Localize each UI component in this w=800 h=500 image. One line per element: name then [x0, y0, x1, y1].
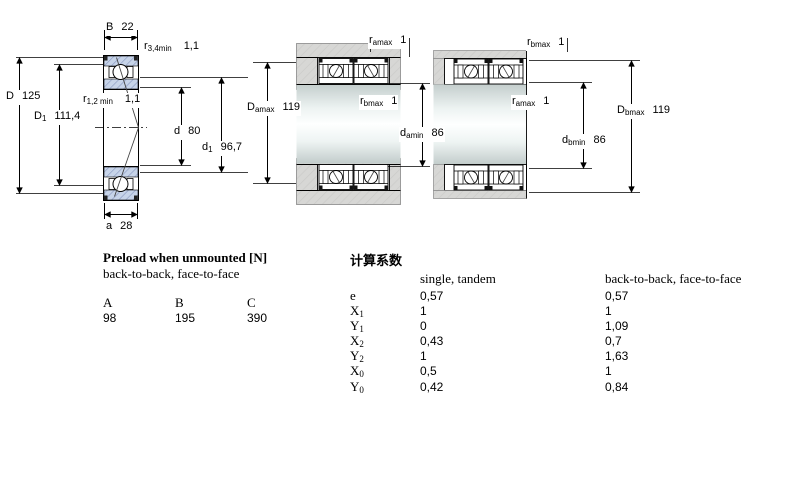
bearing-datasheet-page: B22 r3,4min1,1 D125 D1111,4 r1,2 min1,1 …	[0, 0, 800, 500]
factor-value: 0,57	[605, 289, 628, 303]
factor-value: 0,57	[420, 289, 443, 303]
factor-value: 1	[605, 364, 612, 378]
dim-label-a: a28	[105, 220, 133, 235]
dim-label-damin: damin86	[399, 127, 445, 142]
calculation-factors-table: 计算系数 single, tandem back-to-back, face-t…	[350, 250, 770, 400]
dim-label-ramax-middle: ramax1	[368, 34, 407, 49]
factor-value: 0,5	[420, 364, 437, 378]
dim-label-Damax: Damax119	[246, 101, 301, 116]
dim-label-ramax-right: ramax1	[511, 95, 550, 110]
factor-value: 1	[420, 349, 427, 363]
dim-label-rbmax-middle: rbmax1	[359, 95, 398, 110]
preload-table-title: Preload when unmounted [N]	[103, 250, 267, 266]
dim-label-B: B22	[105, 21, 135, 36]
factor-value: 0,84	[605, 380, 628, 394]
factor-row-label: e	[350, 288, 356, 304]
dim-label-d1: d196,7	[201, 141, 243, 156]
dim-label-r12min: r1,2 min1,1	[82, 93, 141, 108]
factor-value: 0	[420, 319, 427, 333]
factor-value: 1	[420, 304, 427, 318]
factor-value: 1	[605, 304, 612, 318]
factor-row-label: Y1	[350, 318, 364, 334]
preload-value-A: 98	[103, 311, 116, 325]
dim-label-Dbmax: Dbmax119	[616, 104, 671, 119]
factor-row-label: Y2	[350, 348, 364, 364]
factor-value: 0,7	[605, 334, 622, 348]
dim-label-rbmax-right: rbmax1	[526, 36, 565, 51]
factor-row-label: Y0	[350, 379, 364, 395]
right-mounting-drawing	[434, 38, 641, 199]
preload-value-B: 195	[175, 311, 195, 325]
dim-label-D1: D1111,4	[33, 110, 81, 125]
factor-value: 0,43	[420, 334, 443, 348]
preload-table-subtitle: back-to-back, face-to-face	[103, 266, 239, 282]
factors-table-title: 计算系数	[350, 250, 402, 269]
factor-value: 1,63	[605, 349, 628, 363]
preload-col-C: C	[247, 295, 256, 311]
factor-row-label: X1	[350, 303, 364, 319]
preload-col-A: A	[103, 295, 112, 311]
dim-label-r34min: r3,4min1,1	[143, 40, 200, 55]
dim-label-D: D125	[5, 90, 41, 105]
middle-mounting-drawing	[253, 38, 430, 205]
factors-col-single-tandem: single, tandem	[420, 271, 496, 287]
factor-row-label: X0	[350, 363, 364, 379]
dim-label-d: d80	[173, 125, 201, 140]
preload-value-C: 390	[247, 311, 267, 325]
preload-table: Preload when unmounted [N] back-to-back,…	[103, 250, 323, 335]
preload-col-B: B	[175, 295, 184, 311]
factor-row-label: X2	[350, 333, 364, 349]
factors-col-back-to-back: back-to-back, face-to-face	[605, 271, 741, 287]
dim-label-dbmin: dbmin86	[561, 134, 607, 149]
factor-value: 1,09	[605, 319, 628, 333]
factor-value: 0,42	[420, 380, 443, 394]
